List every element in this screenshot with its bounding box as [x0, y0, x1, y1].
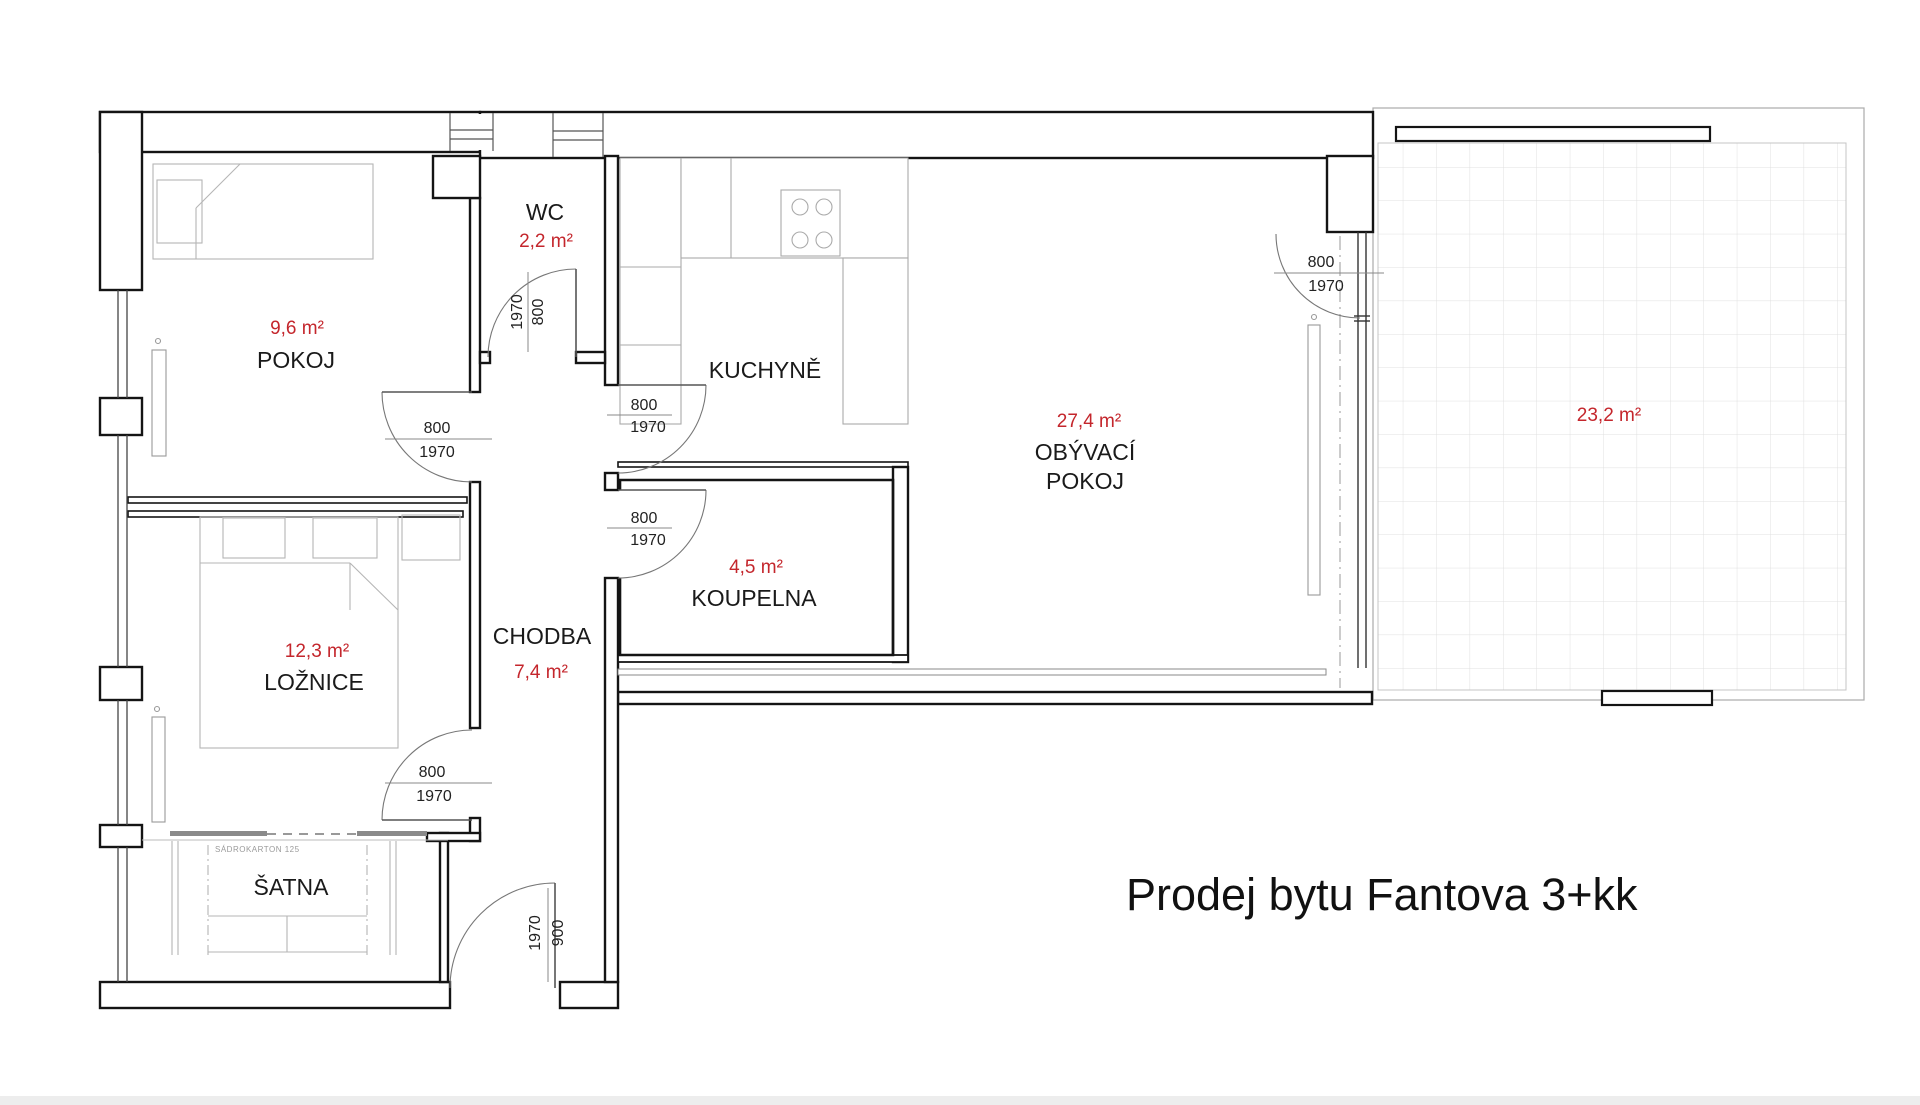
living-room-fixtures [1308, 315, 1320, 596]
door-pokoj: 800 1970 [382, 392, 492, 482]
wall-segment [470, 198, 480, 392]
loznice-name-label: LOŽNICE [264, 669, 364, 695]
terrace-railing-bottom [1602, 691, 1712, 705]
blanket-fold [196, 164, 240, 208]
nightstand [402, 515, 460, 560]
pokoj-area-label: 9,6 m² [270, 318, 324, 339]
door-height-label: 1970 [509, 294, 526, 330]
wall-segment [605, 156, 618, 385]
wall-segment [440, 833, 448, 982]
chodba-area-label: 7,4 m² [514, 662, 568, 683]
loznice-area-label: 12,3 m² [285, 641, 349, 662]
koupelna-area-label: 4,5 m² [729, 557, 783, 578]
wall-segment [100, 112, 480, 152]
blanket-fold [350, 563, 398, 610]
niche [450, 114, 493, 150]
obyvaci-name-line1: OBÝVACÍ [1035, 439, 1136, 465]
door-height-label: 1970 [1308, 278, 1344, 295]
burner [792, 232, 808, 248]
radiator [152, 717, 165, 822]
terasa-area-label: 23,2 m² [1577, 405, 1641, 426]
floor-plan-page: 23,2 m² [0, 0, 1920, 1105]
wc-area-label: 2,2 m² [519, 231, 573, 252]
door-height-label: 1970 [527, 915, 544, 951]
satna-name-label: ŠATNA [254, 873, 330, 900]
pillow [313, 518, 377, 558]
pillow [223, 518, 285, 558]
radiator-valve [1312, 315, 1317, 320]
wall-segment [893, 467, 908, 662]
single-bed [153, 164, 373, 259]
duct-strip [618, 669, 1326, 675]
door-wc: 800 1970 [488, 269, 576, 357]
wall-segment [605, 578, 618, 982]
plan-title: Prodej bytu Fantova 3+kk [1126, 869, 1638, 920]
wc-name-label: WC [526, 199, 564, 225]
radiator [152, 350, 166, 456]
wall-segment [470, 482, 480, 728]
door-arc [382, 392, 472, 482]
door-height-label: 1970 [419, 444, 455, 461]
sliding-door-panel [170, 831, 267, 836]
terrace-railing-top [1396, 127, 1710, 141]
door-height-label: 1970 [416, 788, 452, 805]
burner [816, 232, 832, 248]
door-width-label: 800 [419, 764, 446, 781]
burner [792, 199, 808, 215]
kitchen-units [620, 158, 908, 424]
wall-segment [1327, 156, 1373, 232]
door-width-label: 800 [1308, 254, 1335, 271]
obyvaci-area-label: 27,4 m² [1057, 411, 1121, 432]
left-facade-windows [118, 290, 127, 982]
floor-plan-canvas: 23,2 m² [0, 0, 1920, 1105]
door-entry: 900 1970 [450, 883, 567, 988]
double-bed [200, 517, 398, 748]
door-arc [1276, 234, 1360, 318]
stove [781, 190, 840, 256]
door-width-label: 800 [530, 299, 547, 326]
radiator-valve [155, 707, 160, 712]
koupelna-name-label: KOUPELNA [691, 585, 817, 611]
door-koupelna: 800 1970 [607, 490, 706, 578]
wall-segment [100, 667, 142, 700]
pokoj-name-label: POKOJ [257, 347, 335, 373]
door-height-label: 1970 [630, 419, 666, 436]
wall-segment [605, 473, 618, 490]
kitchen-counter-left [620, 158, 681, 424]
wall-segment [433, 156, 480, 198]
terrace: 23,2 m² [1373, 108, 1864, 705]
door-width-label: 900 [550, 920, 567, 947]
wall-segment [128, 497, 467, 503]
wall-segment [560, 982, 618, 1008]
kuchyne-name-label: KUCHYNĚ [709, 357, 821, 383]
wall-segment [480, 112, 1373, 158]
chodba-name-label: CHODBA [493, 623, 592, 649]
partition-note: SÁDROKARTON 125 [215, 845, 300, 854]
niche [553, 114, 603, 156]
radiator-valve [156, 339, 161, 344]
radiator [1308, 325, 1320, 595]
wall-segment [128, 511, 463, 517]
sliding-door-satna: SÁDROKARTON 125 [142, 831, 448, 854]
wall-segment [576, 352, 605, 363]
door-width-label: 800 [631, 397, 658, 414]
wall-segment [100, 825, 142, 847]
living-room-window-wall [1340, 232, 1370, 688]
door-width-label: 800 [631, 510, 658, 527]
wall-segment [100, 112, 142, 290]
wall-segment [618, 692, 1372, 704]
wall-segment [100, 398, 142, 435]
wall-segment [100, 982, 450, 1008]
door-width-label: 800 [424, 420, 451, 437]
wall-segment [618, 462, 908, 467]
kitchen-tall-unit [843, 258, 908, 424]
pillow [157, 180, 202, 243]
obyvaci-name-line2: POKOJ [1046, 468, 1124, 494]
page-edge-strip [0, 1096, 1920, 1105]
burner [816, 199, 832, 215]
door-height-label: 1970 [630, 532, 666, 549]
sliding-door-panel [357, 831, 427, 836]
pokoj-furniture [152, 164, 373, 456]
door-terasa: 800 1970 [1274, 234, 1384, 318]
